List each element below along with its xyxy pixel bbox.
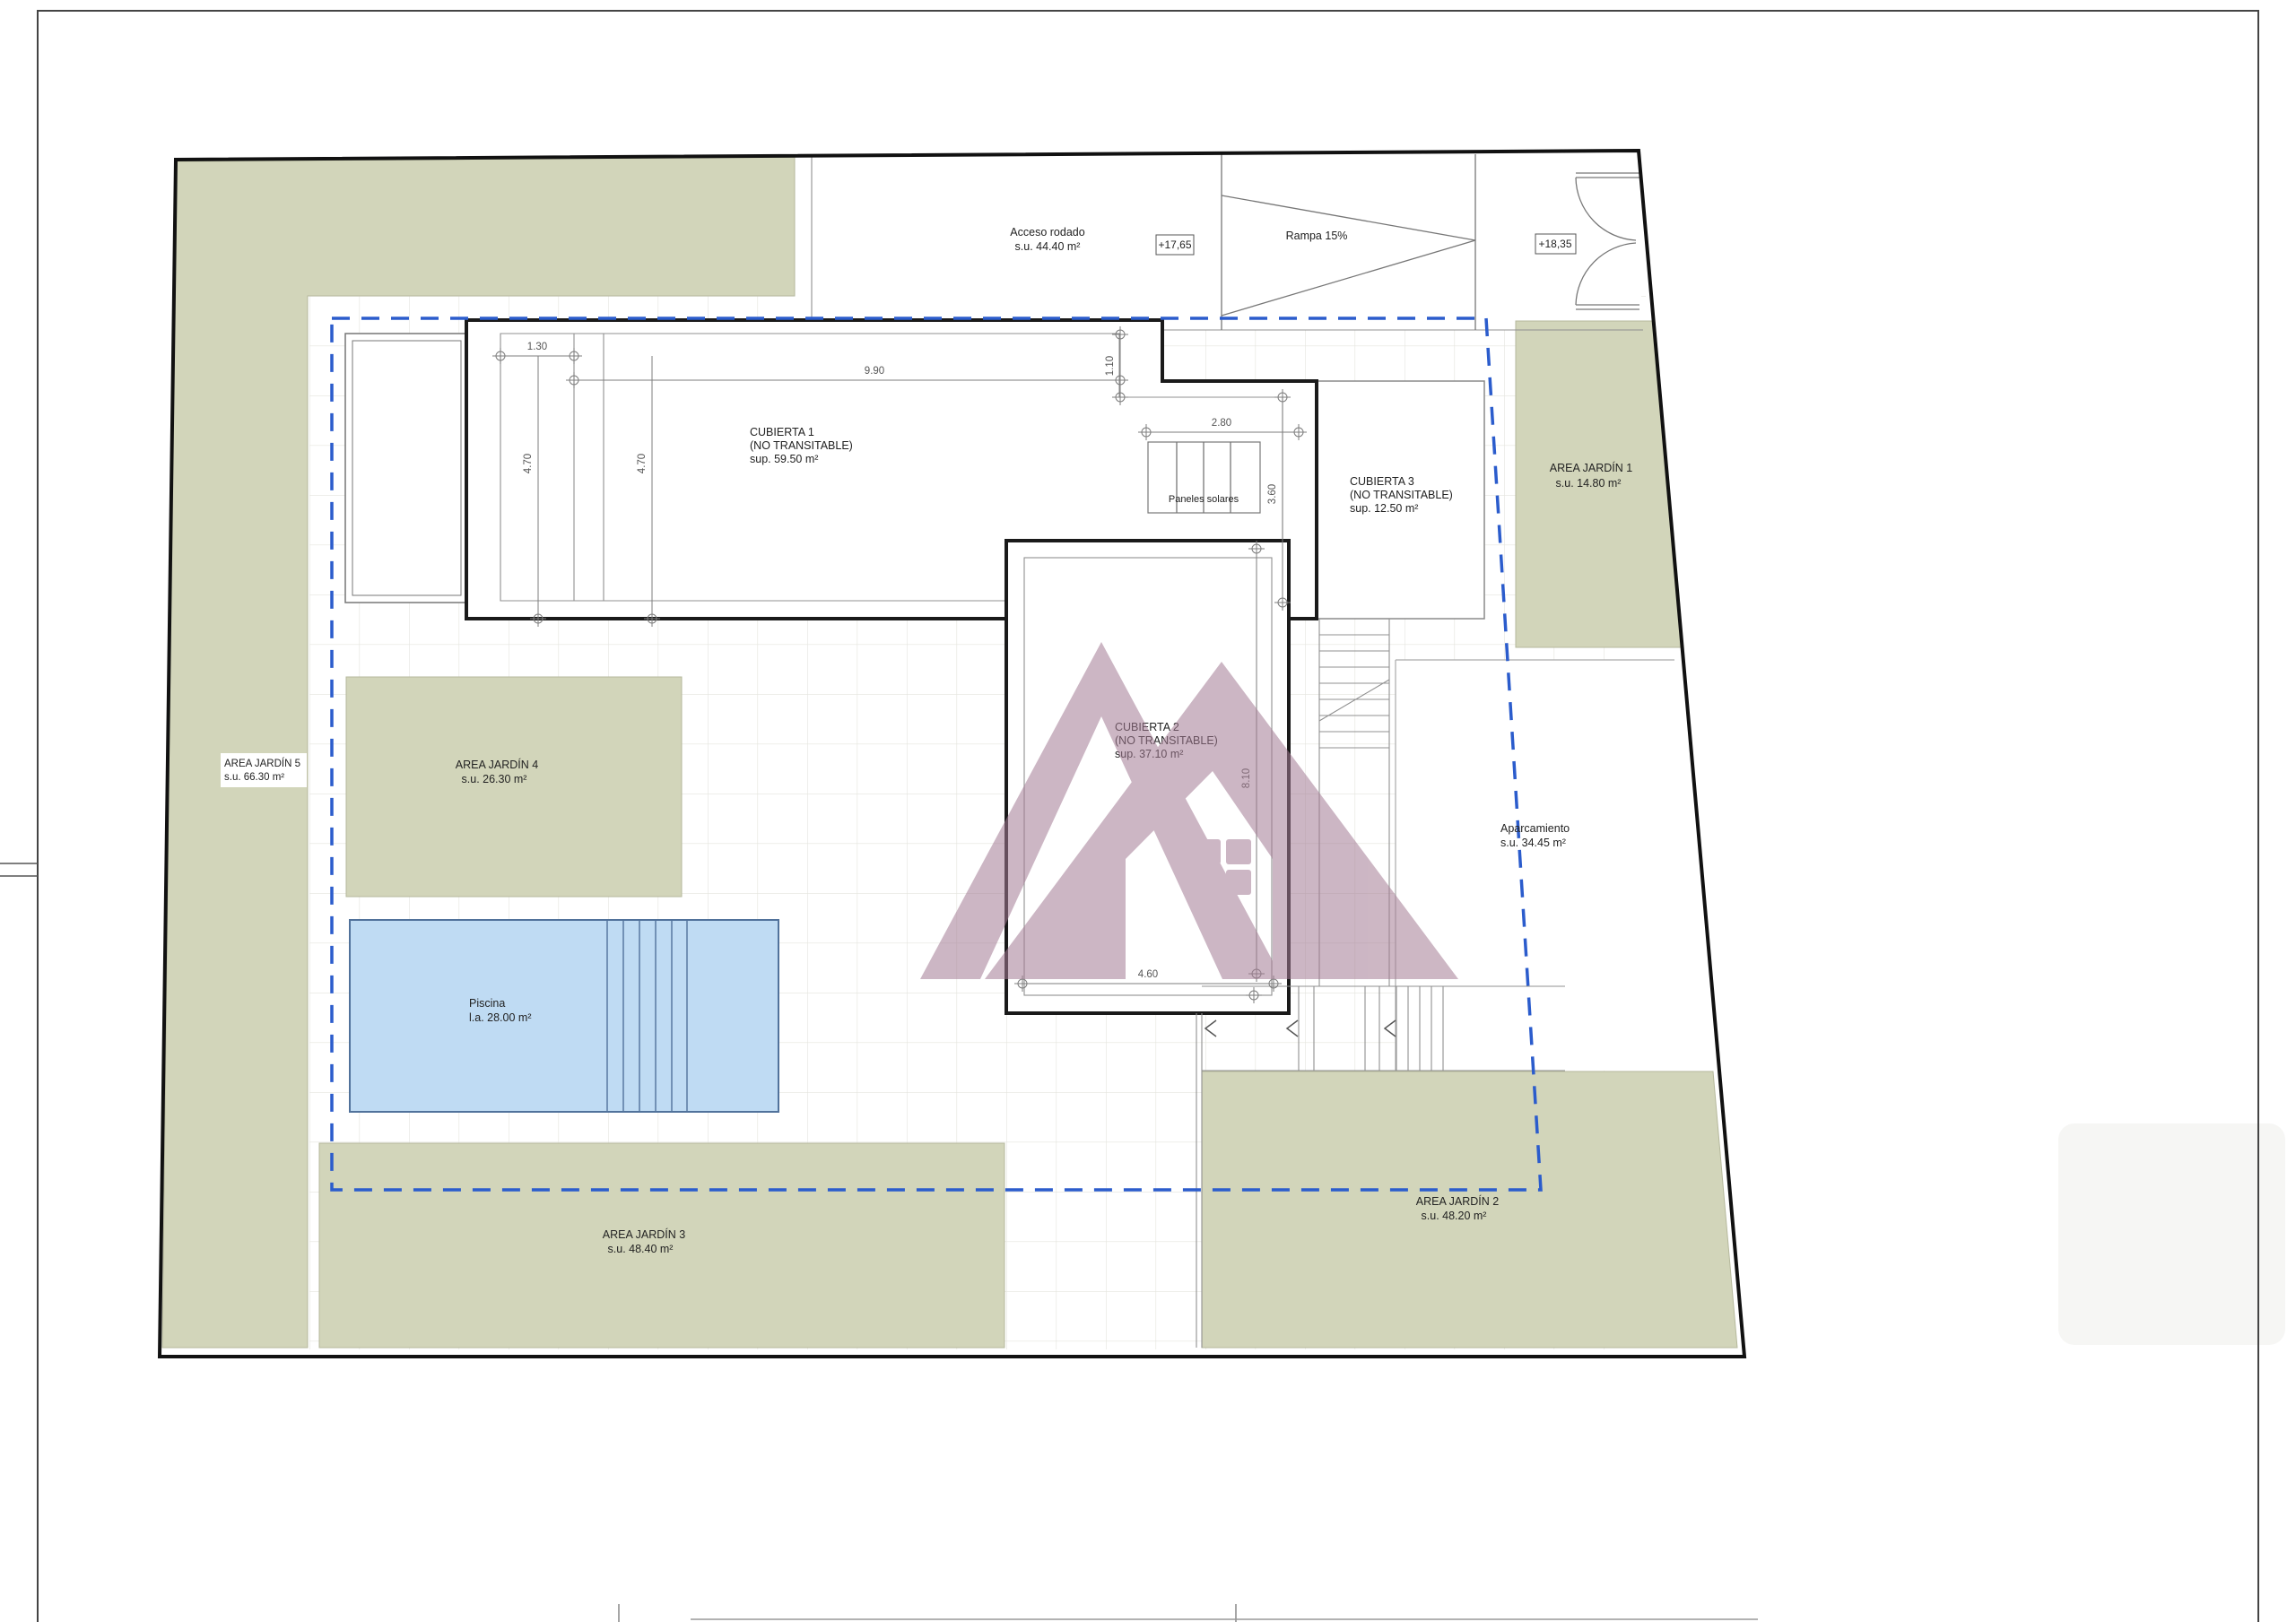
dim-4-70-a: 4.70 — [523, 454, 534, 473]
pool-shape — [350, 920, 778, 1112]
aparcamiento-zone — [1396, 660, 1703, 1071]
dim-1-30: 1.30 — [527, 342, 547, 352]
rampa-label: Rampa 15% — [1286, 230, 1348, 242]
garden-3-label: AREA JARDÍN 3 — [603, 1227, 685, 1241]
site-plan-drawing: 1.30 9.90 1.10 4.70 4.70 2.80 3.60 8.10 … — [0, 0, 2296, 1622]
dim-2-80: 2.80 — [1212, 418, 1231, 429]
cubierta-1-label: CUBIERTA 1 — [750, 426, 814, 438]
acceso-rodado-area: s.u. 44.40 m² — [1015, 240, 1081, 253]
garden-5-area: s.u. 66.30 m² — [224, 772, 284, 783]
garden-1-label: AREA JARDÍN 1 — [1550, 461, 1632, 474]
garden-2-label: AREA JARDÍN 2 — [1416, 1194, 1499, 1208]
sheet-shadow — [2058, 1123, 2285, 1345]
garden-2-area: s.u. 48.20 m² — [1422, 1210, 1487, 1222]
dim-4-60: 4.60 — [1138, 969, 1158, 980]
patio-lightwell — [345, 334, 468, 603]
cubierta-3-area: sup. 12.50 m² — [1350, 502, 1418, 515]
paneles-solares-label: Paneles solares — [1169, 494, 1239, 505]
dim-3-60: 3.60 — [1267, 484, 1278, 504]
garden-area-4-shape — [346, 677, 682, 897]
piscina-label: Piscina — [469, 997, 505, 1010]
acceso-rodado-label: Acceso rodado — [1010, 226, 1084, 239]
dim-4-70-b: 4.70 — [637, 454, 648, 473]
aparcamiento-area: s.u. 34.45 m² — [1500, 837, 1566, 849]
garden-4-area: s.u. 26.30 m² — [462, 773, 527, 785]
cubierta-1-note: (NO TRANSITABLE) — [750, 439, 853, 452]
cubierta-3-note: (NO TRANSITABLE) — [1350, 489, 1453, 501]
level-18-35: +18,35 — [1538, 238, 1571, 250]
level-17-65: +17,65 — [1158, 239, 1191, 251]
aparcamiento-label: Aparcamiento — [1500, 822, 1570, 835]
dim-1-10: 1.10 — [1105, 356, 1116, 376]
acceso-rodado-zone — [795, 152, 1641, 330]
garden-1-area: s.u. 14.80 m² — [1556, 477, 1622, 490]
garden-4-label: AREA JARDÍN 4 — [456, 758, 538, 771]
cubierta-1-area: sup. 59.50 m² — [750, 453, 818, 465]
dim-9-90: 9.90 — [865, 366, 884, 377]
garden-5-label: AREA JARDÍN 5 — [224, 758, 300, 769]
garden-3-area: s.u. 48.40 m² — [608, 1243, 674, 1255]
cubierta-3-label: CUBIERTA 3 — [1350, 475, 1414, 488]
piscina-area: l.a. 28.00 m² — [469, 1011, 531, 1024]
